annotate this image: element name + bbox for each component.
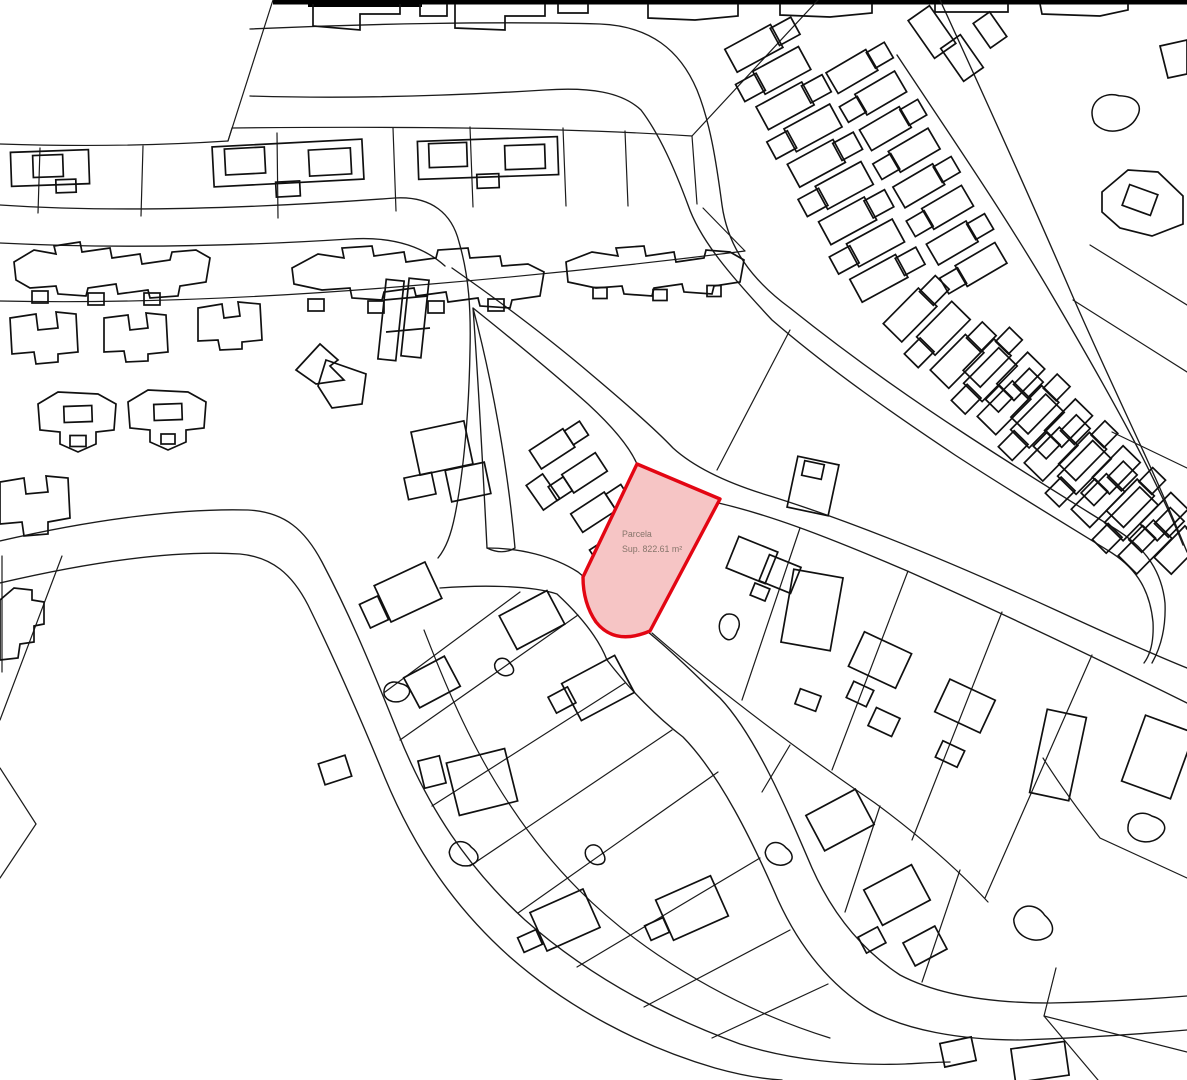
rowhouse-footprint (888, 128, 940, 172)
rowhouse-annex-footprint (564, 421, 588, 445)
building-path (648, 4, 738, 20)
building-path (780, 4, 872, 17)
building-path (104, 313, 168, 362)
boundary-path (400, 615, 578, 740)
boundary-path (0, 141, 228, 145)
building-path (455, 4, 545, 30)
rowhouse-annex-footprint (1107, 461, 1137, 491)
pool-shape (717, 612, 742, 641)
parcel-label-name: Parcela (622, 529, 652, 539)
building-footprint (1122, 715, 1187, 799)
building-footprint (477, 174, 499, 189)
pool-shape (1010, 903, 1057, 945)
rowhouse-annex-footprint (900, 99, 927, 125)
boundary-path (141, 146, 143, 216)
boundary-path (912, 612, 1002, 840)
road-path (0, 510, 950, 1065)
building-footprint (787, 456, 839, 516)
building-footprint (404, 656, 461, 708)
rowhouse-footprint (529, 429, 575, 469)
building-footprint (161, 434, 175, 444)
road-path (250, 89, 1153, 663)
building-footprint (903, 926, 947, 966)
road-path (0, 239, 445, 266)
rowhouse-footprint (1154, 526, 1187, 574)
building-footprint (562, 655, 635, 720)
building-footprint (70, 436, 86, 447)
building-footprint (429, 142, 468, 167)
building-footprint (428, 301, 444, 313)
boundary-path (228, 127, 692, 141)
parcel-boundaries-layer (0, 0, 1187, 1080)
rowhouse-annex-footprint (986, 385, 1013, 412)
building-footprint (1122, 185, 1158, 216)
rowhouse-footprint (562, 453, 608, 493)
building-footprint (33, 154, 64, 177)
boundary-path (742, 528, 800, 700)
building-path (0, 476, 70, 536)
building-footprint (973, 12, 1007, 48)
rowhouse-annex-footprint (1013, 368, 1043, 398)
building-footprint (488, 299, 504, 311)
building-footprint (726, 536, 778, 583)
building-footprint (144, 293, 160, 305)
building-footprint (308, 148, 351, 176)
building-footprint (593, 288, 607, 299)
rowhouse-annex-footprint (866, 42, 893, 68)
rowhouse-footprint (859, 107, 911, 151)
building-footprint (846, 681, 874, 707)
rowhouse-annex-footprint (940, 268, 967, 294)
boundary-path (625, 131, 628, 206)
building-footprint (56, 179, 76, 193)
road-path (473, 308, 515, 552)
building-path (318, 360, 366, 408)
boundary-path (692, 0, 818, 136)
building-path (1160, 40, 1187, 78)
pool-shape (763, 841, 794, 867)
boundary-path (432, 683, 625, 806)
rowhouse-annex-footprint (906, 211, 933, 237)
rowhouse-annex-footprint (967, 214, 994, 240)
boundary-path (692, 136, 697, 204)
building-path (420, 4, 447, 16)
boundary-path (0, 824, 36, 878)
rowhouse-annex-footprint (919, 276, 949, 306)
rowhouse-annex-footprint (1081, 479, 1108, 506)
rowhouse-footprint (893, 164, 945, 208)
map-clip-bar (308, 0, 422, 7)
road-path (440, 586, 1187, 1040)
rowhouse-footprint (955, 242, 1007, 286)
boundary-path (712, 984, 828, 1038)
rowhouse-annex-footprint (1060, 415, 1090, 445)
rowhouse-annex-footprint (933, 157, 960, 183)
building-footprint (374, 562, 442, 622)
boundary-path (38, 148, 40, 213)
building-path (384, 296, 428, 300)
building-footprint (848, 632, 911, 688)
rowhouse-footprint (917, 301, 971, 355)
rowhouse-annex-footprint (996, 327, 1023, 354)
building-footprint (908, 6, 956, 59)
building-footprint (368, 301, 384, 313)
cadastral-map: Parcela Sup. 822.61 m² (0, 0, 1187, 1080)
building-footprint (505, 144, 546, 169)
boundary-path (1112, 432, 1187, 468)
rowhouse-footprint (1059, 432, 1107, 480)
rowhouse-footprint (930, 334, 984, 388)
building-footprint (802, 461, 825, 480)
boundary-path (563, 128, 566, 206)
building-footprint (224, 147, 265, 175)
building-footprint (359, 596, 388, 628)
road-path (452, 268, 1187, 668)
building-path (1102, 170, 1183, 236)
building-footprint (88, 293, 104, 305)
boundary-path (577, 858, 760, 967)
rowhouse-annex-footprint (1045, 477, 1075, 507)
building-footprint (212, 139, 364, 187)
boundary-path (717, 330, 790, 470)
pool-shape (1126, 810, 1167, 845)
rowhouse-footprint (922, 185, 974, 229)
building-footprint (64, 406, 93, 423)
rowhouse-annex-footprint (1033, 432, 1060, 459)
rowhouse-annex-footprint (904, 338, 934, 368)
building-footprint (750, 583, 770, 601)
building-footprint (935, 741, 964, 767)
rowhouse-footprint (926, 221, 978, 265)
rowhouse-annex-footprint (873, 153, 900, 179)
building-footprint (318, 755, 351, 785)
building-path (558, 4, 588, 13)
road-path (897, 55, 1183, 545)
building-footprint (308, 299, 324, 311)
boundary-path (1044, 968, 1098, 1080)
roads-layer (0, 0, 1187, 1080)
building-footprint (806, 789, 874, 851)
rowhouse-annex-footprint (548, 477, 572, 501)
boundary-path (1090, 245, 1187, 305)
building-footprint (864, 865, 930, 926)
rowhouse-footprint (1106, 479, 1154, 527)
boundary-path (228, 0, 273, 141)
rowhouse-footprint (1011, 386, 1059, 434)
boundary-path (985, 655, 1092, 898)
boundary-path (922, 870, 960, 982)
building-footprint (404, 472, 436, 499)
building-footprint (781, 569, 843, 651)
building-path (10, 312, 78, 364)
parcel-label-area: Sup. 822.61 m² (622, 544, 682, 554)
boundary-path (518, 772, 718, 913)
rowhouse-annex-footprint (1129, 526, 1156, 553)
boundary-path (1043, 758, 1187, 878)
building-path (198, 302, 262, 350)
cadastral-map-viewport: Parcela Sup. 822.61 m² (0, 0, 1187, 1080)
building-footprint (1011, 1041, 1069, 1080)
road-path (0, 553, 782, 1080)
building-path (14, 242, 210, 298)
rowhouse-footprint (826, 50, 878, 94)
building-footprint (526, 474, 560, 510)
pool-shape (447, 840, 480, 868)
boundary-path (0, 768, 36, 824)
boundary-path (424, 630, 830, 1038)
boundary-path (652, 633, 988, 902)
buildings-layer (0, 4, 1187, 1080)
building-footprint (858, 927, 886, 953)
rowhouse-footprint (883, 288, 937, 342)
building-footprint (941, 35, 984, 82)
rowhouse-annex-footprint (998, 431, 1028, 461)
boundary-path (644, 930, 790, 1007)
rowhouse-annex-footprint (966, 322, 996, 352)
building-footprint (418, 756, 446, 788)
highlighted-parcel-group: Parcela Sup. 822.61 m² (583, 464, 720, 637)
pool-shape (1086, 84, 1145, 139)
rowhouse-annex-footprint (839, 96, 866, 122)
building-footprint (154, 404, 183, 421)
rowhouse-annex-footprint (951, 384, 981, 414)
rowhouse-footprint (1092, 446, 1140, 494)
building-footprint (548, 687, 576, 713)
rowhouse-footprint (725, 25, 783, 73)
boundary-path (832, 571, 908, 770)
building-footprint (653, 290, 667, 301)
building-path (0, 588, 44, 660)
building-footprint (868, 707, 900, 736)
building-footprint (795, 689, 821, 712)
building-footprint (1030, 709, 1087, 800)
rowhouse-footprint (855, 71, 907, 115)
pool-shape (582, 842, 610, 868)
building-path (935, 4, 1008, 12)
rowhouse-annex-footprint (1092, 524, 1122, 554)
building-path (1040, 4, 1128, 16)
building-footprint (656, 876, 729, 941)
top-edge-bar (273, 0, 1187, 7)
boundary-path (845, 806, 880, 912)
